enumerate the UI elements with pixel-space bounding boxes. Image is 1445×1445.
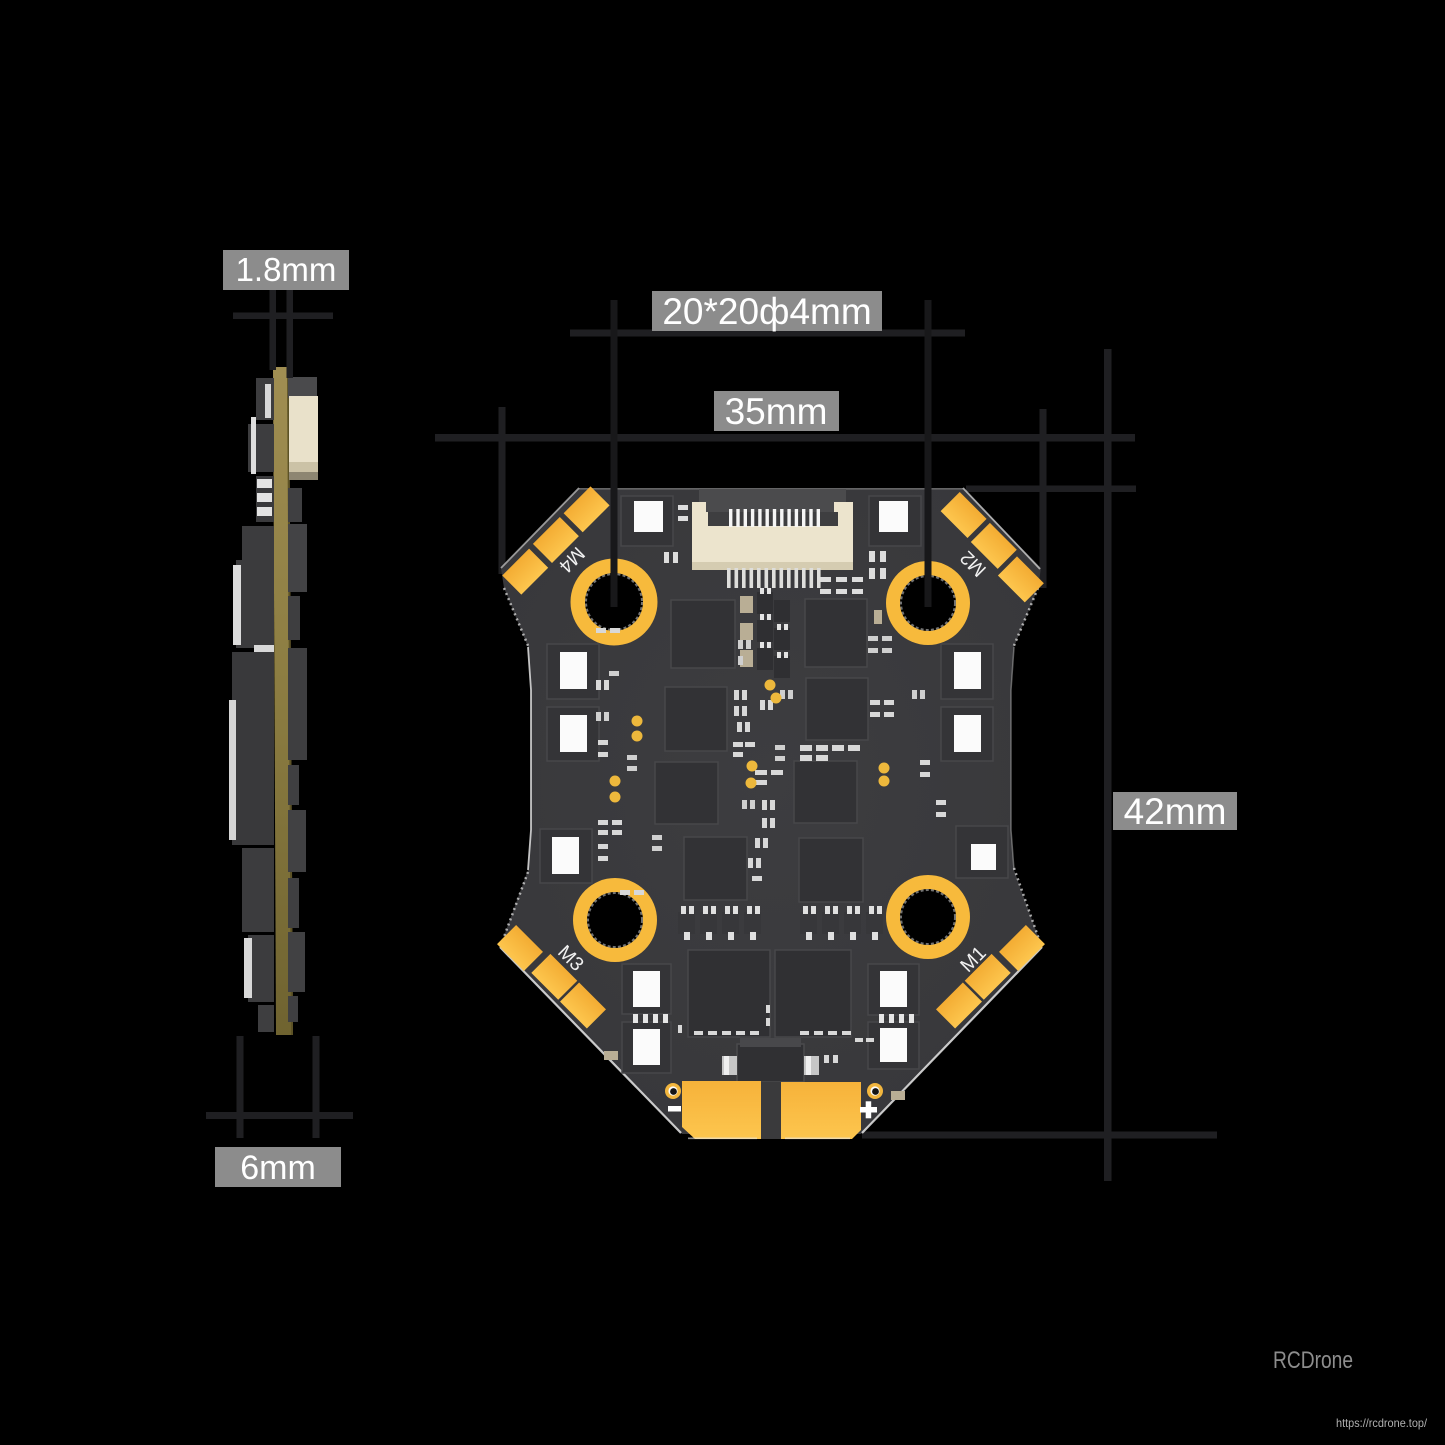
svg-text:1.8mm: 1.8mm	[236, 251, 337, 288]
svg-text:RCDrone: RCDrone	[1273, 1347, 1353, 1374]
svg-text:42mm: 42mm	[1124, 791, 1227, 832]
svg-text:35mm: 35mm	[725, 391, 828, 432]
svg-text:20*20ф4mm: 20*20ф4mm	[662, 291, 871, 332]
svg-text:https://rcdrone.top/: https://rcdrone.top/	[1336, 1416, 1428, 1430]
svg-text:6mm: 6mm	[240, 1149, 316, 1187]
